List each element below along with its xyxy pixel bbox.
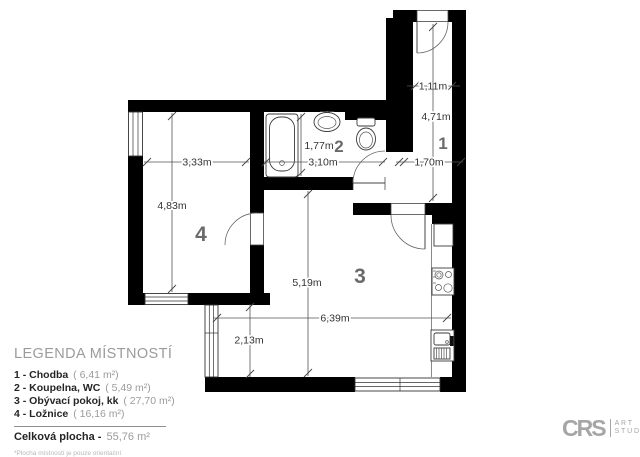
entrance-door [417, 11, 448, 54]
legend-divider [14, 426, 166, 427]
legend-total-value: 55,76 m² [106, 431, 149, 443]
bathroom-door [353, 151, 385, 190]
window-living-bottom [355, 378, 440, 391]
wall-toilet-block [345, 100, 386, 120]
dim-label-bath-width: 3,10m [308, 157, 337, 169]
logo-brand: CRS [562, 417, 605, 439]
wall-bottom-right [440, 377, 466, 392]
legend-footnote: *Plocha místností je pouze orientační [14, 450, 184, 457]
fridge-icon [434, 224, 453, 246]
legend-item-bedroom: 4 - Ložnice ( 16,16 m²) [14, 408, 184, 421]
legend-item-area: ( 27,70 m²) [123, 395, 174, 407]
dim-living-length: 5,19m [292, 190, 321, 377]
dim-bedroom-length: 4,83m [157, 112, 186, 293]
stove-icon [432, 268, 454, 295]
dim-label-hall-length: 4,71m [421, 111, 450, 123]
wall-bedroom-living-lower [250, 245, 264, 305]
dim-label-bedroom-width: 3,33m [182, 157, 211, 169]
legend: LEGENDA MÍSTNOSTÍ 1 - Chodba ( 6,41 m²) … [14, 346, 184, 457]
legend-item-name: 4 - Ložnice [14, 408, 68, 420]
wall-bottom-left [205, 377, 355, 392]
logo-divider [610, 419, 611, 437]
room-number-bedroom: 4 [195, 223, 207, 246]
legend-item-name: 3 - Obývací pokoj, kk [14, 395, 118, 407]
logo-wordmark: ART STUDIO [615, 420, 640, 437]
dimensions: 1,11m 4,71m 1,70m 1,77m 3,10m 3,33m [143, 23, 465, 378]
dim-label-living-length: 5,19m [292, 277, 321, 289]
wall-kitchen-stub [432, 215, 452, 224]
legend-total: Celková plocha - 55,76 m² [14, 431, 184, 443]
legend-item-area: ( 6,41 m²) [73, 369, 119, 381]
legend-item-bathroom: 2 - Koupelna, WC ( 5,49 m²) [14, 382, 184, 395]
legend-item-area: ( 16,16 m²) [73, 408, 124, 420]
legend-item-hall: 1 - Chodba ( 6,41 m²) [14, 369, 184, 382]
dim-label-bath-depth: 1,77m [304, 140, 333, 152]
legend-item-name: 2 - Koupelna, WC [14, 382, 100, 394]
dim-label-living-width: 6,39m [320, 313, 349, 325]
dim-living-width: 6,39m [213, 313, 451, 325]
dim-bedroom-width: 3,33m [143, 157, 250, 169]
window-bedroom-left [129, 112, 143, 156]
dim-hall-length: 4,71m [421, 23, 450, 202]
toilet-icon [357, 118, 376, 150]
logo-crs-art-studio: CRS ART STUDIO [562, 417, 640, 439]
legend-total-label: Celková plocha - [14, 431, 101, 443]
fixtures [266, 111, 454, 377]
dim-living-nook: 2,13m [234, 303, 263, 378]
dim-label-bedroom-length: 4,83m [157, 200, 186, 212]
room-number-bathroom: 2 [334, 137, 343, 156]
logo-line-art: ART [615, 420, 640, 429]
wall-bedroom-living-upper [250, 112, 264, 213]
room-number-living: 3 [354, 265, 366, 288]
wall-hall-living-right [425, 203, 452, 215]
wall-left [128, 156, 143, 296]
living-room-door [391, 204, 425, 250]
legend-item-living: 3 - Obývací pokoj, kk ( 27,70 m²) [14, 395, 184, 408]
dim-label-hall-passage: 1,70m [414, 157, 443, 169]
window-balcony-door [205, 305, 218, 377]
room-number-hall: 1 [438, 134, 447, 153]
legend-item-area: ( 5,49 m²) [105, 382, 151, 394]
wall-hall-living-left [353, 203, 391, 215]
legend-title: LEGENDA MÍSTNOSTÍ [14, 346, 184, 362]
window-bedroom-bottom [145, 294, 188, 305]
legend-item-name: 1 - Chodba [14, 369, 68, 381]
dim-label-living-nook: 2,13m [234, 335, 263, 347]
kitchen-sink-icon [431, 330, 454, 361]
bathtub-icon [266, 114, 298, 177]
wall-hall-shaft [386, 18, 413, 152]
bedroom-door [225, 213, 264, 245]
wall-bath-bottom [262, 177, 353, 190]
logo-line-studio: STUDIO [615, 428, 640, 437]
wall-bedroom-bottom-left [128, 293, 145, 305]
sink-icon [314, 111, 340, 131]
